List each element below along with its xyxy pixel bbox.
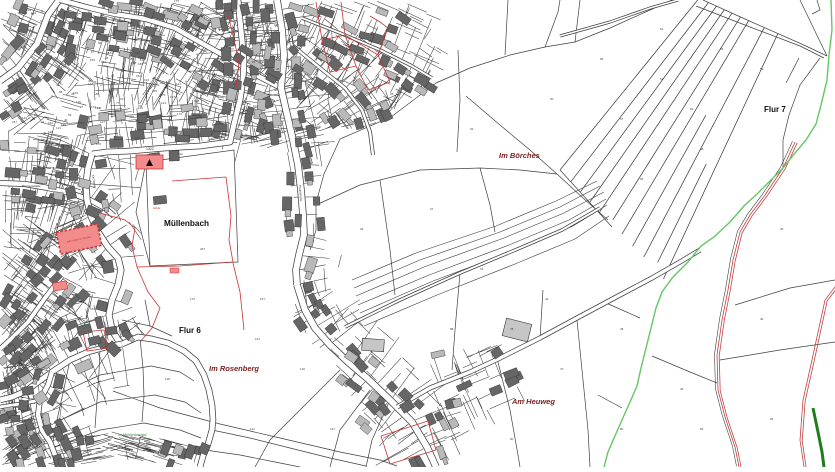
- svg-text:30: 30: [550, 97, 554, 101]
- svg-text:130: 130: [76, 100, 81, 104]
- svg-text:94: 94: [98, 41, 102, 45]
- svg-text:40: 40: [64, 118, 68, 122]
- svg-text:88: 88: [450, 327, 454, 331]
- svg-text:237: 237: [200, 247, 205, 251]
- svg-text:90: 90: [510, 437, 514, 441]
- svg-text:44: 44: [545, 297, 549, 301]
- svg-text:58: 58: [700, 147, 704, 151]
- svg-text:88: 88: [59, 90, 63, 94]
- svg-text:132: 132: [250, 13, 255, 17]
- svg-text:23: 23: [196, 32, 200, 36]
- svg-text:22: 22: [41, 120, 45, 124]
- svg-text:157: 157: [260, 297, 265, 301]
- svg-text:112: 112: [178, 152, 183, 156]
- svg-text:101: 101: [253, 104, 258, 108]
- svg-text:170: 170: [96, 142, 101, 146]
- svg-text:57: 57: [620, 117, 624, 121]
- svg-text:Flur 6: Flur 6: [179, 326, 201, 335]
- svg-text:52: 52: [660, 77, 664, 81]
- svg-text:157: 157: [12, 120, 17, 124]
- svg-text:21: 21: [180, 131, 184, 135]
- svg-text:185: 185: [135, 51, 140, 55]
- svg-text:113: 113: [56, 126, 61, 130]
- svg-text:145: 145: [61, 123, 66, 127]
- svg-text:32: 32: [31, 12, 35, 16]
- svg-text:48: 48: [620, 327, 624, 331]
- svg-text:21: 21: [204, 16, 208, 20]
- svg-text:153: 153: [90, 58, 95, 62]
- svg-text:Im Mühlenbachtal: Im Mühlenbachtal: [118, 433, 147, 437]
- svg-text:91: 91: [252, 60, 256, 64]
- svg-text:106: 106: [79, 121, 84, 125]
- svg-text:114: 114: [255, 337, 260, 341]
- svg-text:43: 43: [297, 118, 301, 122]
- svg-text:164: 164: [22, 33, 27, 37]
- svg-text:136: 136: [173, 126, 178, 130]
- svg-text:1322: 1322: [146, 147, 154, 151]
- svg-text:46: 46: [276, 67, 280, 71]
- svg-text:32: 32: [470, 127, 474, 131]
- svg-text:Im Rosenberg: Im Rosenberg: [209, 364, 259, 373]
- svg-text:186: 186: [129, 57, 134, 61]
- svg-text:124: 124: [161, 101, 166, 105]
- svg-text:Müllenbach: Müllenbach: [164, 219, 209, 228]
- svg-text:55: 55: [155, 24, 159, 28]
- svg-text:88: 88: [165, 85, 169, 89]
- svg-text:70: 70: [162, 93, 166, 97]
- svg-text:118: 118: [165, 377, 170, 381]
- svg-text:146: 146: [73, 91, 78, 95]
- svg-text:84: 84: [770, 417, 774, 421]
- svg-text:177: 177: [88, 82, 93, 86]
- svg-text:193: 193: [26, 8, 31, 12]
- svg-text:119: 119: [300, 367, 305, 371]
- svg-text:36: 36: [780, 227, 784, 231]
- svg-text:78: 78: [510, 327, 514, 331]
- svg-text:33: 33: [93, 80, 97, 84]
- svg-text:70: 70: [560, 367, 564, 371]
- svg-text:50: 50: [245, 123, 249, 127]
- svg-text:139: 139: [251, 31, 256, 35]
- svg-text:115: 115: [135, 136, 140, 140]
- svg-text:123: 123: [101, 60, 106, 64]
- svg-text:153: 153: [90, 307, 95, 311]
- svg-text:172: 172: [190, 297, 195, 301]
- svg-text:27: 27: [34, 113, 38, 117]
- svg-text:141: 141: [250, 427, 255, 431]
- svg-text:66: 66: [600, 57, 604, 61]
- svg-text:67: 67: [80, 105, 84, 109]
- svg-text:85: 85: [133, 61, 137, 65]
- svg-text:107: 107: [120, 97, 125, 101]
- svg-text:40: 40: [760, 317, 764, 321]
- svg-text:31: 31: [138, 104, 142, 108]
- svg-text:59: 59: [68, 113, 72, 117]
- svg-text:Flur 7: Flur 7: [764, 105, 786, 114]
- svg-text:81: 81: [200, 88, 204, 92]
- svg-text:64: 64: [690, 107, 694, 111]
- svg-text:56: 56: [153, 76, 157, 80]
- svg-text:113: 113: [160, 81, 165, 85]
- svg-text:37: 37: [30, 42, 34, 46]
- svg-text:178: 178: [61, 65, 66, 69]
- svg-text:34: 34: [480, 267, 484, 271]
- svg-text:62: 62: [640, 177, 644, 181]
- svg-text:172: 172: [177, 112, 182, 116]
- svg-text:21: 21: [164, 39, 168, 43]
- svg-text:140: 140: [22, 116, 27, 120]
- svg-text:77: 77: [116, 101, 120, 105]
- svg-text:198: 198: [194, 99, 199, 103]
- svg-text:186: 186: [94, 92, 99, 96]
- svg-text:33: 33: [112, 81, 116, 85]
- svg-text:128: 128: [140, 58, 145, 62]
- svg-text:186: 186: [138, 62, 143, 66]
- svg-text:Brunnenstraße: Brunnenstraße: [22, 184, 41, 188]
- svg-text:82: 82: [700, 427, 704, 431]
- svg-text:55: 55: [720, 47, 724, 51]
- svg-text:90: 90: [169, 104, 173, 108]
- svg-text:152: 152: [136, 74, 141, 78]
- svg-text:115: 115: [144, 111, 149, 115]
- svg-text:42: 42: [56, 83, 60, 87]
- svg-text:157: 157: [274, 23, 279, 27]
- svg-text:61: 61: [660, 27, 664, 31]
- svg-text:45: 45: [680, 387, 684, 391]
- svg-text:138: 138: [48, 130, 53, 134]
- svg-text:22: 22: [120, 19, 124, 23]
- svg-text:147: 147: [330, 427, 335, 431]
- svg-text:144: 144: [176, 82, 181, 86]
- svg-text:Am Heuweg: Am Heuweg: [511, 397, 555, 406]
- svg-text:Schule: Schule: [153, 207, 161, 210]
- svg-text:107: 107: [100, 120, 105, 124]
- svg-text:27: 27: [430, 207, 434, 211]
- svg-text:146: 146: [107, 48, 112, 52]
- svg-text:Im Börches: Im Börches: [499, 151, 540, 160]
- svg-text:157: 157: [170, 95, 175, 99]
- svg-text:80: 80: [620, 427, 624, 431]
- svg-text:28: 28: [390, 92, 394, 96]
- svg-text:172: 172: [91, 105, 96, 109]
- svg-text:175: 175: [174, 0, 179, 3]
- svg-text:125: 125: [152, 89, 157, 93]
- svg-text:29: 29: [360, 227, 364, 231]
- svg-text:67: 67: [91, 50, 95, 54]
- svg-text:59: 59: [760, 67, 764, 71]
- svg-text:124: 124: [33, 107, 38, 111]
- svg-text:152: 152: [48, 121, 53, 125]
- svg-text:193: 193: [144, 78, 149, 82]
- svg-text:150: 150: [128, 21, 133, 25]
